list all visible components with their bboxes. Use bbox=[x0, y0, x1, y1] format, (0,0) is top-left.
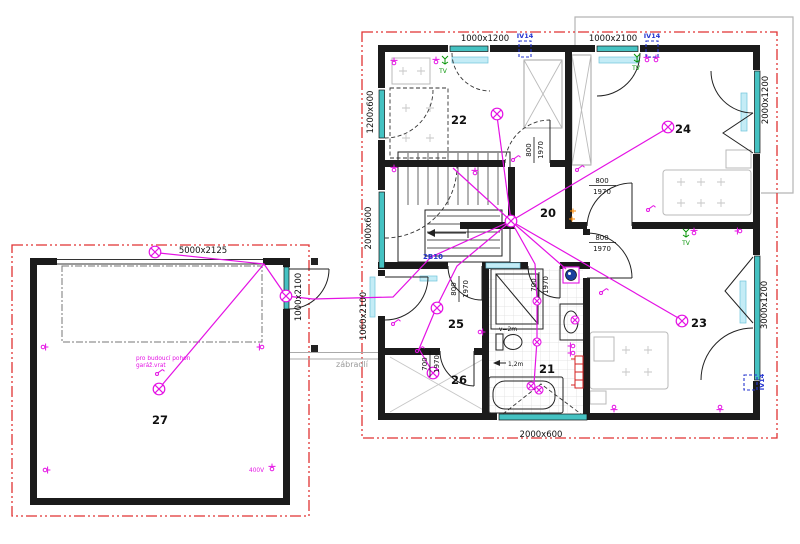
shower-height-label: v=2m bbox=[499, 326, 517, 333]
wall-light-icon bbox=[527, 382, 535, 390]
dim-win-bottom: 2000x600 bbox=[520, 430, 563, 440]
svg-text:700: 700 bbox=[530, 278, 538, 291]
tv-label: TV bbox=[681, 240, 691, 247]
circuit-label: 2B10 bbox=[423, 253, 443, 261]
floor-plan-svg: zábradlí bbox=[0, 0, 800, 544]
ceiling-light-icon bbox=[149, 246, 161, 258]
ceiling-light-icon bbox=[280, 290, 292, 302]
svg-text:1970: 1970 bbox=[537, 141, 545, 159]
garage-note-line1: pro budoucí pohon bbox=[136, 355, 191, 362]
svg-text:800: 800 bbox=[525, 143, 533, 156]
dim-win-left-lower: 2000x600 bbox=[364, 207, 374, 250]
power-label: 400V bbox=[249, 468, 264, 474]
room-label-22: 22 bbox=[451, 113, 467, 127]
dim-win-left-upper: 1200x600 bbox=[366, 91, 376, 134]
svg-text:1970: 1970 bbox=[462, 280, 470, 298]
svg-text:800: 800 bbox=[595, 234, 608, 242]
wall-light-icon bbox=[533, 297, 541, 305]
dim-win-right-upper: 2000x1200 bbox=[761, 76, 771, 124]
dim-entry-door: 1060x2100 bbox=[359, 292, 369, 340]
room-label-20: 20 bbox=[540, 206, 556, 220]
svg-text:700: 700 bbox=[421, 357, 429, 370]
svg-text:1970: 1970 bbox=[593, 245, 611, 253]
room-label-21: 21 bbox=[539, 362, 555, 376]
svg-text:800: 800 bbox=[450, 282, 458, 295]
wall-light-icon bbox=[571, 316, 579, 324]
fan-icon bbox=[563, 267, 579, 283]
room-label-23: 23 bbox=[691, 316, 707, 330]
svg-text:1970: 1970 bbox=[593, 188, 611, 196]
tv-label: TV bbox=[631, 65, 641, 72]
ceiling-light-icon bbox=[505, 215, 517, 227]
garage-note-line2: garáž.vrat bbox=[136, 362, 166, 369]
ceiling-light-icon bbox=[676, 315, 688, 327]
ceiling-light-icon bbox=[662, 121, 674, 133]
wall-light-icon bbox=[533, 338, 541, 346]
room-label-24: 24 bbox=[675, 122, 691, 136]
vent-label: IV14 bbox=[644, 32, 661, 40]
room-label-25: 25 bbox=[448, 317, 464, 331]
floor-plan-page: zábradlí bbox=[0, 0, 800, 544]
svg-text:1970: 1970 bbox=[433, 355, 441, 373]
svg-text:1970: 1970 bbox=[542, 276, 550, 294]
ceiling-light-icon bbox=[491, 108, 503, 120]
tub-length-label: 1,2m bbox=[508, 361, 524, 368]
room-label-27: 27 bbox=[152, 413, 168, 427]
tv-label: TV bbox=[438, 68, 448, 75]
ceiling-light-icon bbox=[153, 383, 165, 395]
railing-post bbox=[311, 345, 318, 352]
railing-post bbox=[311, 258, 318, 265]
vent-label: IV14 bbox=[517, 32, 534, 40]
ceiling-light-icon bbox=[431, 302, 443, 314]
dim-garage-door: 5000x2125 bbox=[179, 246, 227, 256]
railing-label: zábradlí bbox=[336, 360, 369, 369]
room-label-26: 26 bbox=[451, 373, 467, 387]
dim-win-right-lower: 3000x1200 bbox=[760, 281, 770, 329]
svg-text:800: 800 bbox=[595, 177, 608, 185]
wall-light-icon bbox=[535, 386, 543, 394]
dim-win-top-right: 1000x2100 bbox=[589, 34, 637, 44]
vent-label: IV14 bbox=[758, 373, 766, 390]
dim-win-top-left: 1000x1200 bbox=[461, 34, 509, 44]
dim-garage-side-door: 1000x2100 bbox=[294, 273, 304, 321]
